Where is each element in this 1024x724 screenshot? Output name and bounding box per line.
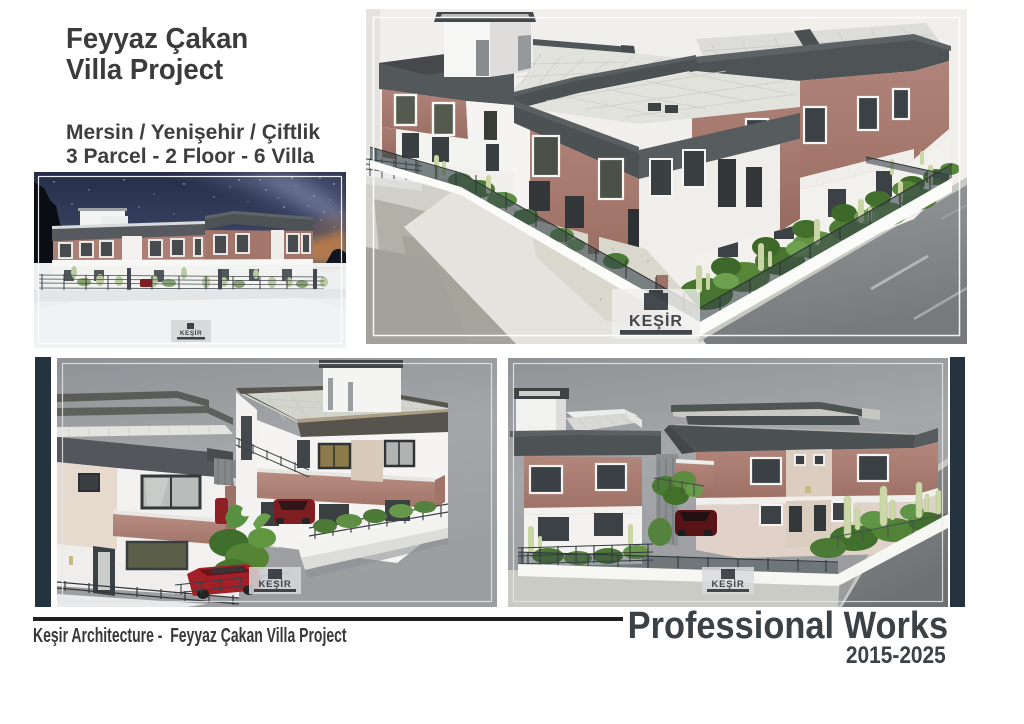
svg-text:KEŞİR: KEŞİR bbox=[180, 329, 202, 337]
svg-text:KEŞİR: KEŞİR bbox=[711, 579, 744, 590]
svg-text:KEŞİR: KEŞİR bbox=[258, 579, 291, 590]
svg-text:KEŞİR: KEŞİR bbox=[629, 312, 683, 330]
